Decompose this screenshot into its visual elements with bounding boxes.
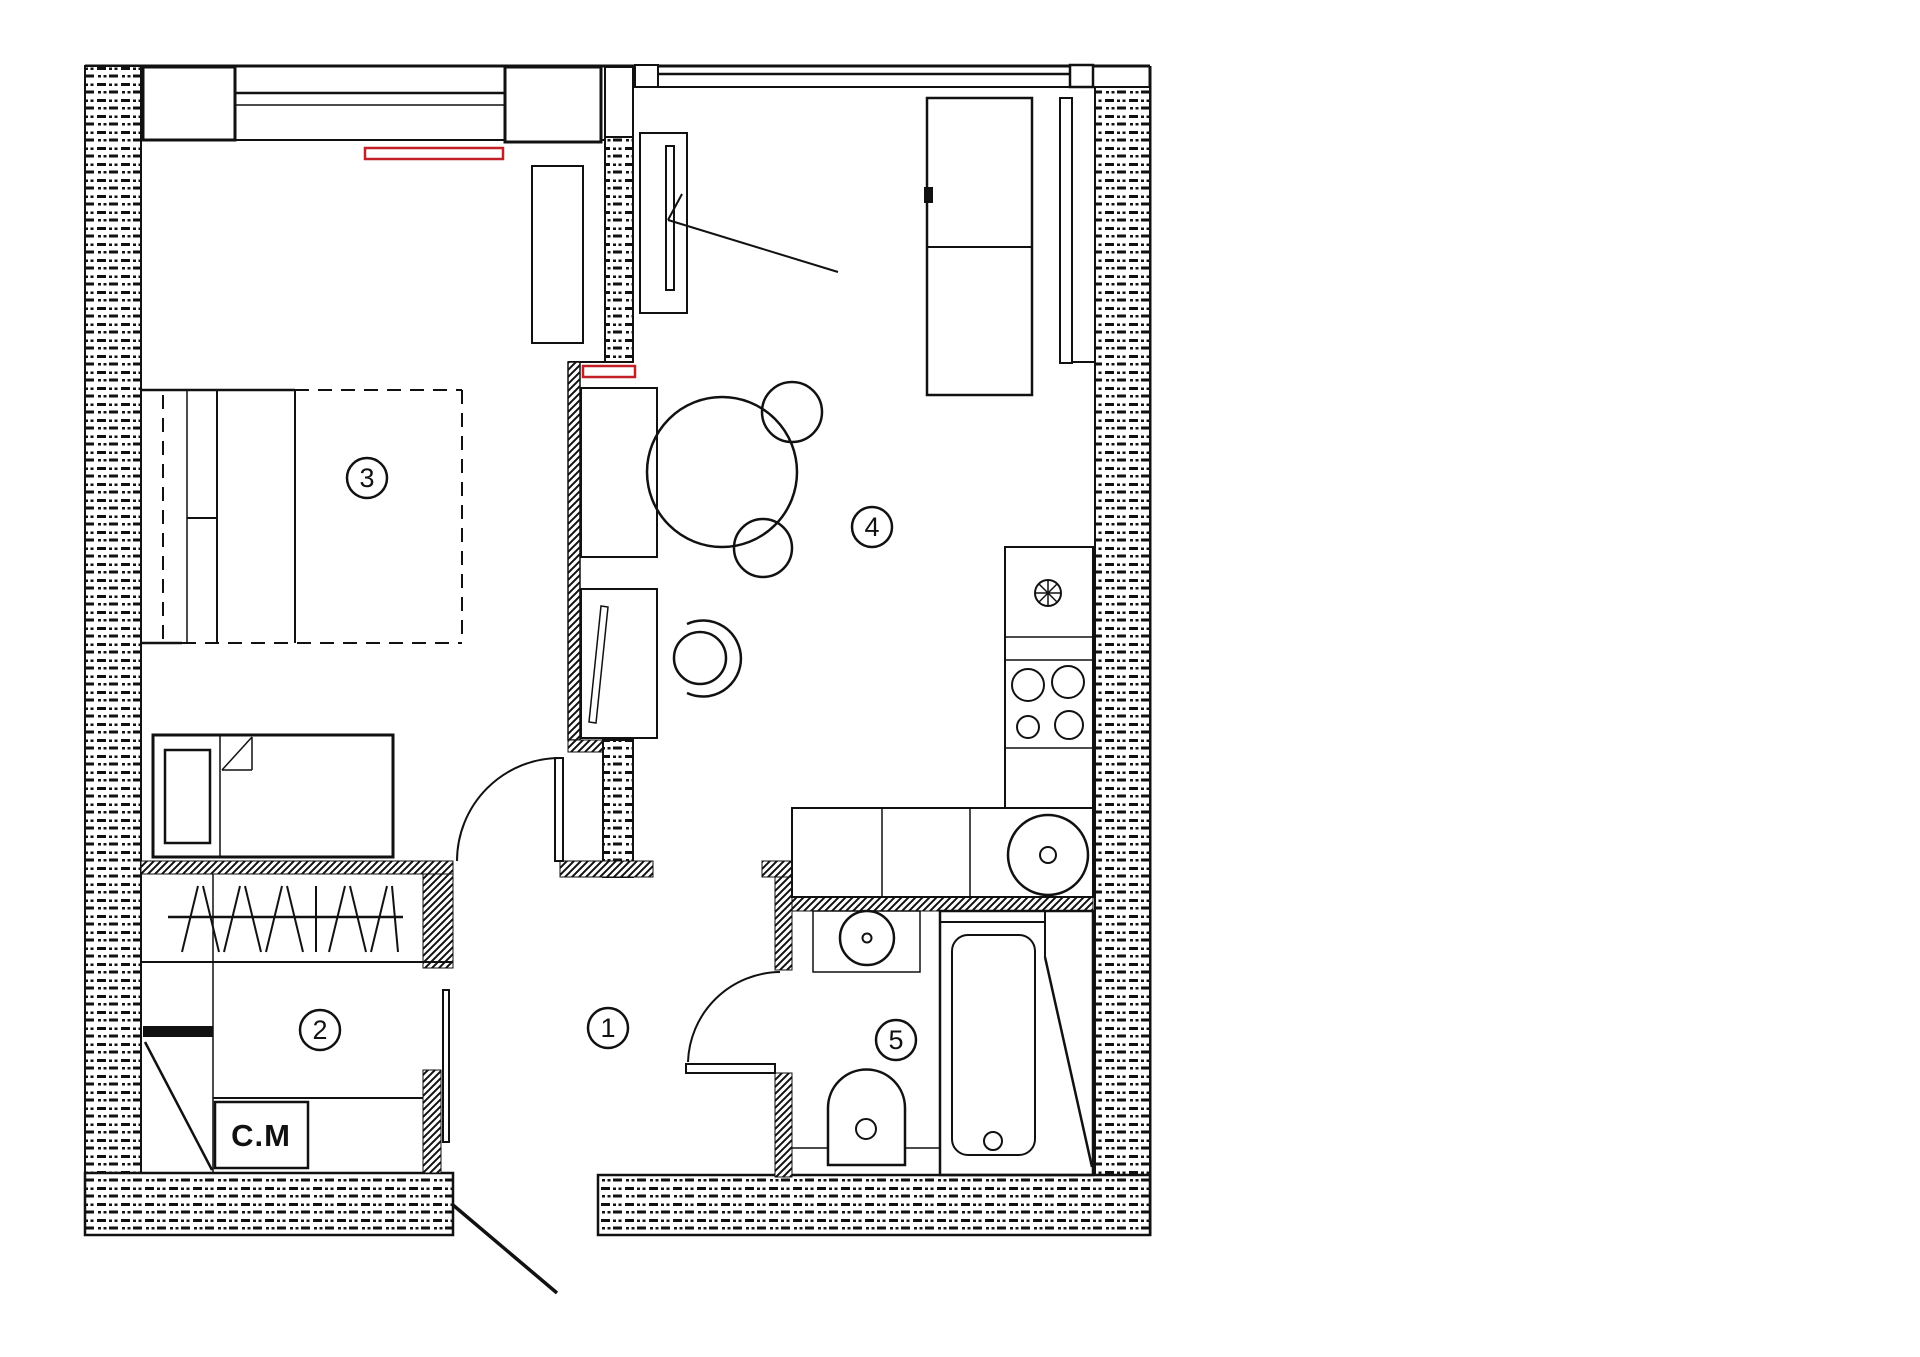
dining-chair-1 bbox=[762, 382, 822, 442]
duct-chase bbox=[1060, 98, 1072, 363]
room-number-3: 3 bbox=[359, 463, 374, 493]
dining-chair-2 bbox=[734, 519, 792, 577]
child-bed bbox=[153, 735, 393, 857]
kitchen-sink bbox=[1008, 815, 1088, 895]
right-load-bearing-wall bbox=[1095, 87, 1150, 1233]
fridge-hinge-mark bbox=[924, 187, 933, 203]
pillow bbox=[165, 750, 210, 843]
kitchen-window-post-right bbox=[1070, 65, 1093, 87]
bathroom-wall-flange bbox=[762, 861, 792, 877]
room-badge-hallway: 1 bbox=[588, 1008, 628, 1048]
radiators bbox=[365, 148, 635, 377]
mid-load-bearing-wall-upper bbox=[605, 137, 633, 362]
kitchen-units bbox=[792, 98, 1095, 897]
built-in-cabinet-top-left bbox=[143, 67, 235, 140]
entry-door-leaf bbox=[453, 1205, 557, 1293]
desk-accessory bbox=[589, 606, 608, 723]
bathroom-door-swing-arc bbox=[688, 972, 780, 1062]
bottom-wall-right bbox=[598, 1175, 1150, 1235]
cooktop-burners bbox=[1012, 666, 1084, 739]
room-number-5: 5 bbox=[888, 1025, 903, 1055]
faucet-symbol bbox=[1035, 580, 1061, 606]
mid-wall-top-segment bbox=[605, 67, 633, 137]
bathroom-fixtures bbox=[792, 911, 1093, 1175]
shoe-cabinet-front bbox=[143, 1026, 213, 1037]
dressing-door-leaf bbox=[443, 990, 449, 1142]
kitchen-counter-south bbox=[792, 808, 1093, 897]
room-badge-bathroom: 5 bbox=[876, 1020, 916, 1060]
bathtub bbox=[940, 911, 1093, 1175]
bathtub-drain bbox=[984, 1132, 1002, 1150]
bedroom-door bbox=[457, 758, 563, 861]
room-number-4: 4 bbox=[864, 512, 879, 542]
dressing-room: C.M bbox=[141, 874, 453, 1172]
hall-wall-cap bbox=[560, 861, 653, 877]
dressing-room-wall-upper bbox=[423, 874, 453, 968]
dining-table bbox=[647, 397, 797, 547]
washbasin-drain bbox=[863, 934, 872, 943]
bathtub-basin bbox=[952, 935, 1035, 1155]
left-load-bearing-wall bbox=[85, 66, 141, 1235]
washbasin bbox=[840, 911, 894, 965]
bedroom-door-leaf bbox=[555, 758, 563, 861]
floor-plan-canvas: C.M bbox=[0, 0, 1920, 1357]
dressing-room-wall-lower bbox=[423, 1070, 441, 1173]
desk-chair bbox=[674, 621, 741, 697]
room-badge-dressing: 2 bbox=[300, 1010, 340, 1050]
double-bed bbox=[141, 390, 462, 643]
room-badge-bedroom: 3 bbox=[347, 458, 387, 498]
bottom-wall-left bbox=[85, 1173, 453, 1235]
toilet bbox=[828, 1070, 905, 1166]
kitchen-sink-drain bbox=[1040, 847, 1056, 863]
mid-load-bearing-wall-lower bbox=[603, 740, 633, 877]
bedroom-door-swing-arc bbox=[457, 758, 560, 861]
radiator-living bbox=[583, 366, 635, 377]
room-number-2: 2 bbox=[312, 1015, 327, 1045]
closet-hangers bbox=[182, 886, 398, 952]
bathtub-screen-line bbox=[1045, 957, 1092, 1167]
view-direction-arrow bbox=[668, 194, 838, 272]
kitchen-counter-column bbox=[1005, 547, 1093, 808]
partition-cap-top bbox=[568, 740, 605, 752]
sideboard bbox=[581, 388, 657, 557]
radiator-bedroom-window bbox=[365, 148, 503, 159]
floor-plan-drawing: C.M bbox=[0, 0, 1920, 1357]
bathroom-west-wall-lower bbox=[775, 1073, 792, 1177]
room-number-1: 1 bbox=[600, 1013, 615, 1043]
bed-dashed-outline bbox=[163, 390, 462, 643]
bathroom-door bbox=[686, 972, 780, 1073]
blanket-fold bbox=[222, 737, 252, 770]
bathroom-door-leaf bbox=[686, 1064, 775, 1073]
bedroom-wardrobe bbox=[532, 166, 583, 343]
built-in-cabinet-top-middle bbox=[505, 67, 601, 142]
bedroom-closet-wall bbox=[141, 861, 453, 874]
bedroom-furniture bbox=[141, 166, 583, 857]
washing-machine-label: C.M bbox=[231, 1118, 291, 1153]
bathroom-west-wall-upper bbox=[775, 877, 792, 970]
bedroom-living-partition bbox=[568, 362, 580, 740]
room-badge-living-kitchen: 4 bbox=[852, 507, 892, 547]
kitchen-bathroom-wall bbox=[792, 897, 1093, 911]
shoe-cabinet-open-door bbox=[145, 1042, 212, 1170]
kitchen-window-post-left bbox=[635, 65, 658, 87]
